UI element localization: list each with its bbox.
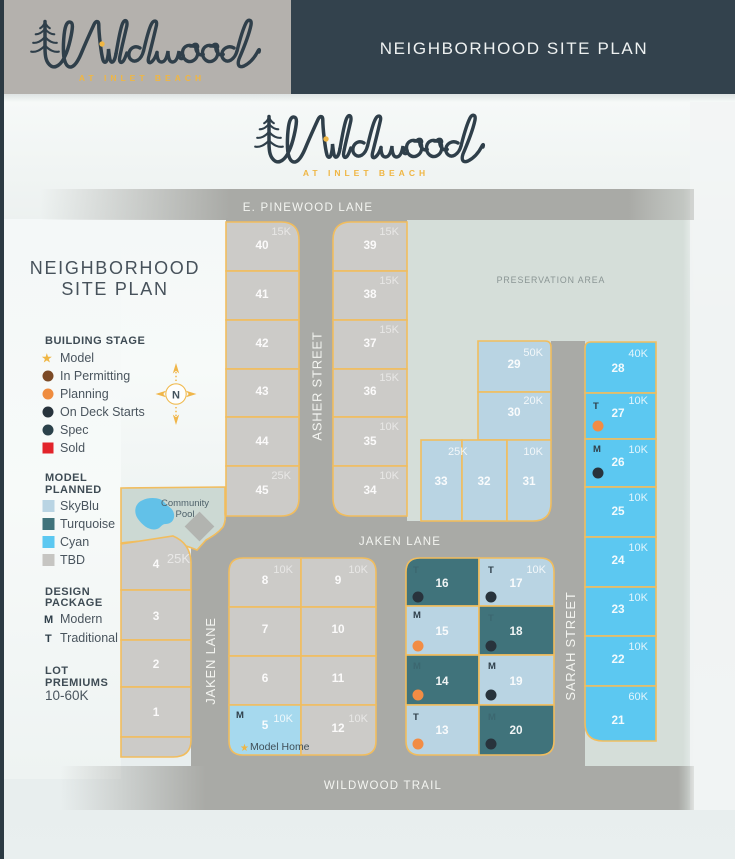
- svg-text:40: 40: [255, 238, 269, 252]
- svg-text:10K: 10K: [523, 446, 543, 458]
- svg-text:NEIGHBORHOOD: NEIGHBORHOOD: [30, 258, 200, 278]
- svg-text:10K: 10K: [379, 470, 399, 482]
- svg-text:29: 29: [507, 357, 521, 371]
- svg-text:42: 42: [255, 336, 269, 350]
- svg-text:Turquoise: Turquoise: [60, 517, 115, 531]
- svg-text:10K: 10K: [628, 492, 648, 504]
- svg-text:JAKEN LANE: JAKEN LANE: [359, 536, 441, 548]
- svg-text:2: 2: [153, 657, 160, 671]
- svg-text:SARAH STREET: SARAH STREET: [563, 591, 578, 700]
- svg-text:14: 14: [435, 674, 449, 688]
- svg-text:10K: 10K: [348, 564, 368, 576]
- svg-text:T: T: [413, 712, 419, 723]
- svg-text:LOT: LOT: [45, 665, 69, 677]
- svg-text:43: 43: [255, 384, 269, 398]
- svg-text:24: 24: [611, 553, 625, 567]
- svg-text:25K: 25K: [271, 470, 291, 482]
- svg-text:ASHER STREET: ASHER STREET: [310, 331, 325, 440]
- svg-text:Traditional: Traditional: [60, 631, 118, 645]
- svg-text:26: 26: [611, 455, 625, 469]
- svg-text:45: 45: [255, 483, 269, 497]
- svg-text:In Permitting: In Permitting: [60, 369, 130, 383]
- svg-text:1: 1: [153, 705, 160, 719]
- svg-text:10: 10: [331, 622, 345, 636]
- svg-text:6: 6: [262, 671, 269, 685]
- svg-text:NEIGHBORHOOD SITE PLAN: NEIGHBORHOOD SITE PLAN: [380, 39, 649, 58]
- svg-text:★: ★: [41, 351, 53, 366]
- svg-text:11: 11: [332, 671, 345, 685]
- svg-text:10K: 10K: [628, 592, 648, 604]
- svg-text:3: 3: [153, 609, 160, 623]
- svg-text:35: 35: [363, 434, 377, 448]
- svg-text:7: 7: [262, 622, 269, 636]
- svg-text:PACKAGE: PACKAGE: [45, 597, 103, 609]
- svg-text:50K: 50K: [523, 347, 543, 359]
- svg-text:Spec: Spec: [60, 423, 89, 437]
- svg-text:39: 39: [363, 238, 377, 252]
- svg-text:25K: 25K: [448, 446, 468, 458]
- svg-text:M: M: [488, 661, 496, 672]
- svg-text:10K: 10K: [348, 713, 368, 725]
- svg-text:23: 23: [611, 602, 625, 616]
- svg-text:10K: 10K: [628, 542, 648, 554]
- svg-text:15K: 15K: [379, 324, 399, 336]
- svg-text:20: 20: [509, 723, 523, 737]
- svg-text:E. PINEWOOD LANE: E. PINEWOOD LANE: [243, 202, 373, 214]
- svg-text:38: 38: [363, 287, 377, 301]
- svg-text:T: T: [488, 613, 494, 624]
- svg-text:9: 9: [335, 573, 342, 587]
- svg-text:40K: 40K: [628, 348, 648, 360]
- svg-text:BUILDING STAGE: BUILDING STAGE: [45, 335, 145, 347]
- svg-text:T: T: [488, 565, 494, 576]
- svg-text:17: 17: [509, 576, 523, 590]
- svg-text:★: ★: [240, 743, 249, 754]
- svg-text:PRESERVATION AREA: PRESERVATION AREA: [497, 275, 606, 285]
- svg-text:8: 8: [262, 573, 269, 587]
- svg-text:10K: 10K: [628, 641, 648, 653]
- svg-text:M: M: [413, 661, 421, 672]
- svg-text:SITE PLAN: SITE PLAN: [61, 279, 168, 299]
- svg-text:13: 13: [435, 723, 449, 737]
- svg-text:Pool: Pool: [175, 509, 194, 520]
- svg-text:4: 4: [153, 557, 160, 571]
- svg-text:Model: Model: [60, 351, 94, 365]
- svg-text:Planning: Planning: [60, 387, 109, 401]
- svg-text:25K: 25K: [167, 551, 190, 566]
- svg-text:N: N: [172, 390, 180, 402]
- svg-text:On Deck Starts: On Deck Starts: [60, 405, 145, 419]
- svg-text:Cyan: Cyan: [60, 535, 89, 549]
- svg-text:10-60K: 10-60K: [45, 688, 89, 703]
- svg-text:M: M: [236, 710, 244, 721]
- svg-text:15K: 15K: [379, 275, 399, 287]
- svg-text:10K: 10K: [526, 564, 546, 576]
- svg-text:T: T: [45, 633, 52, 645]
- svg-text:T: T: [413, 565, 419, 576]
- svg-text:27: 27: [611, 406, 625, 420]
- svg-text:5: 5: [262, 718, 269, 732]
- svg-text:31: 31: [522, 474, 536, 488]
- svg-text:TBD: TBD: [60, 553, 85, 567]
- svg-text:12: 12: [331, 721, 345, 735]
- svg-text:18: 18: [509, 624, 523, 638]
- svg-text:34: 34: [363, 483, 377, 497]
- svg-text:28: 28: [611, 361, 625, 375]
- svg-text:15K: 15K: [379, 372, 399, 384]
- svg-text:Sold: Sold: [60, 441, 85, 455]
- svg-text:33: 33: [434, 474, 448, 488]
- svg-text:Model Home: Model Home: [250, 741, 310, 753]
- svg-text:10K: 10K: [273, 713, 293, 725]
- svg-text:PLANNED: PLANNED: [45, 484, 102, 496]
- svg-text:20K: 20K: [523, 395, 543, 407]
- svg-text:M: M: [488, 712, 496, 723]
- svg-text:M: M: [593, 444, 601, 455]
- svg-text:10K: 10K: [628, 395, 648, 407]
- svg-text:30: 30: [507, 405, 521, 419]
- svg-text:M: M: [44, 614, 53, 626]
- svg-text:10K: 10K: [379, 421, 399, 433]
- svg-text:44: 44: [255, 434, 269, 448]
- svg-text:41: 41: [255, 287, 269, 301]
- svg-text:19: 19: [509, 674, 523, 688]
- svg-text:WILDWOOD TRAIL: WILDWOOD TRAIL: [324, 780, 442, 792]
- svg-text:36: 36: [363, 384, 377, 398]
- svg-text:Community: Community: [161, 498, 209, 509]
- svg-text:10K: 10K: [273, 564, 293, 576]
- svg-text:22: 22: [611, 652, 625, 666]
- svg-text:SkyBlu: SkyBlu: [60, 499, 99, 513]
- svg-text:MODEL: MODEL: [45, 472, 87, 484]
- svg-text:10K: 10K: [628, 444, 648, 456]
- svg-text:T: T: [593, 401, 599, 412]
- svg-text:15K: 15K: [379, 226, 399, 238]
- svg-text:15: 15: [435, 624, 449, 638]
- svg-text:37: 37: [363, 336, 377, 350]
- svg-text:JAKEN LANE: JAKEN LANE: [203, 617, 218, 704]
- svg-text:15K: 15K: [271, 226, 291, 238]
- svg-text:32: 32: [477, 474, 491, 488]
- svg-text:16: 16: [435, 576, 449, 590]
- svg-text:M: M: [413, 610, 421, 621]
- svg-text:21: 21: [611, 713, 625, 727]
- svg-text:25: 25: [611, 504, 625, 518]
- svg-text:60K: 60K: [628, 691, 648, 703]
- svg-text:Modern: Modern: [60, 612, 102, 626]
